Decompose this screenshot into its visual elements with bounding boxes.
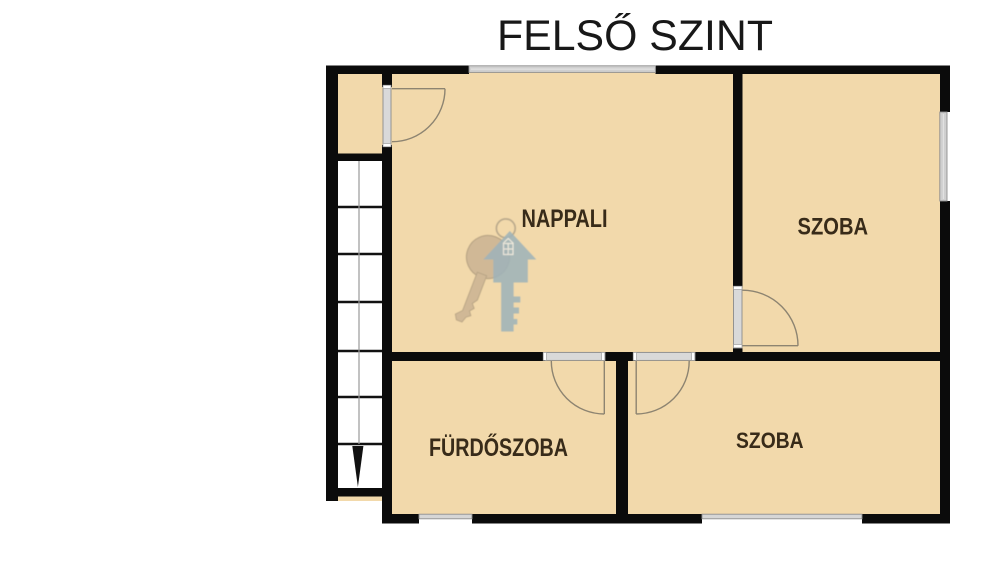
svg-text:NAPPALI: NAPPALI bbox=[522, 205, 608, 233]
svg-text:FÜRDŐSZOBA: FÜRDŐSZOBA bbox=[429, 433, 568, 462]
svg-text:SZOBA: SZOBA bbox=[736, 428, 804, 453]
svg-text:SZOBA: SZOBA bbox=[798, 214, 869, 241]
svg-text:FELSŐ SZINT: FELSŐ SZINT bbox=[497, 12, 773, 60]
